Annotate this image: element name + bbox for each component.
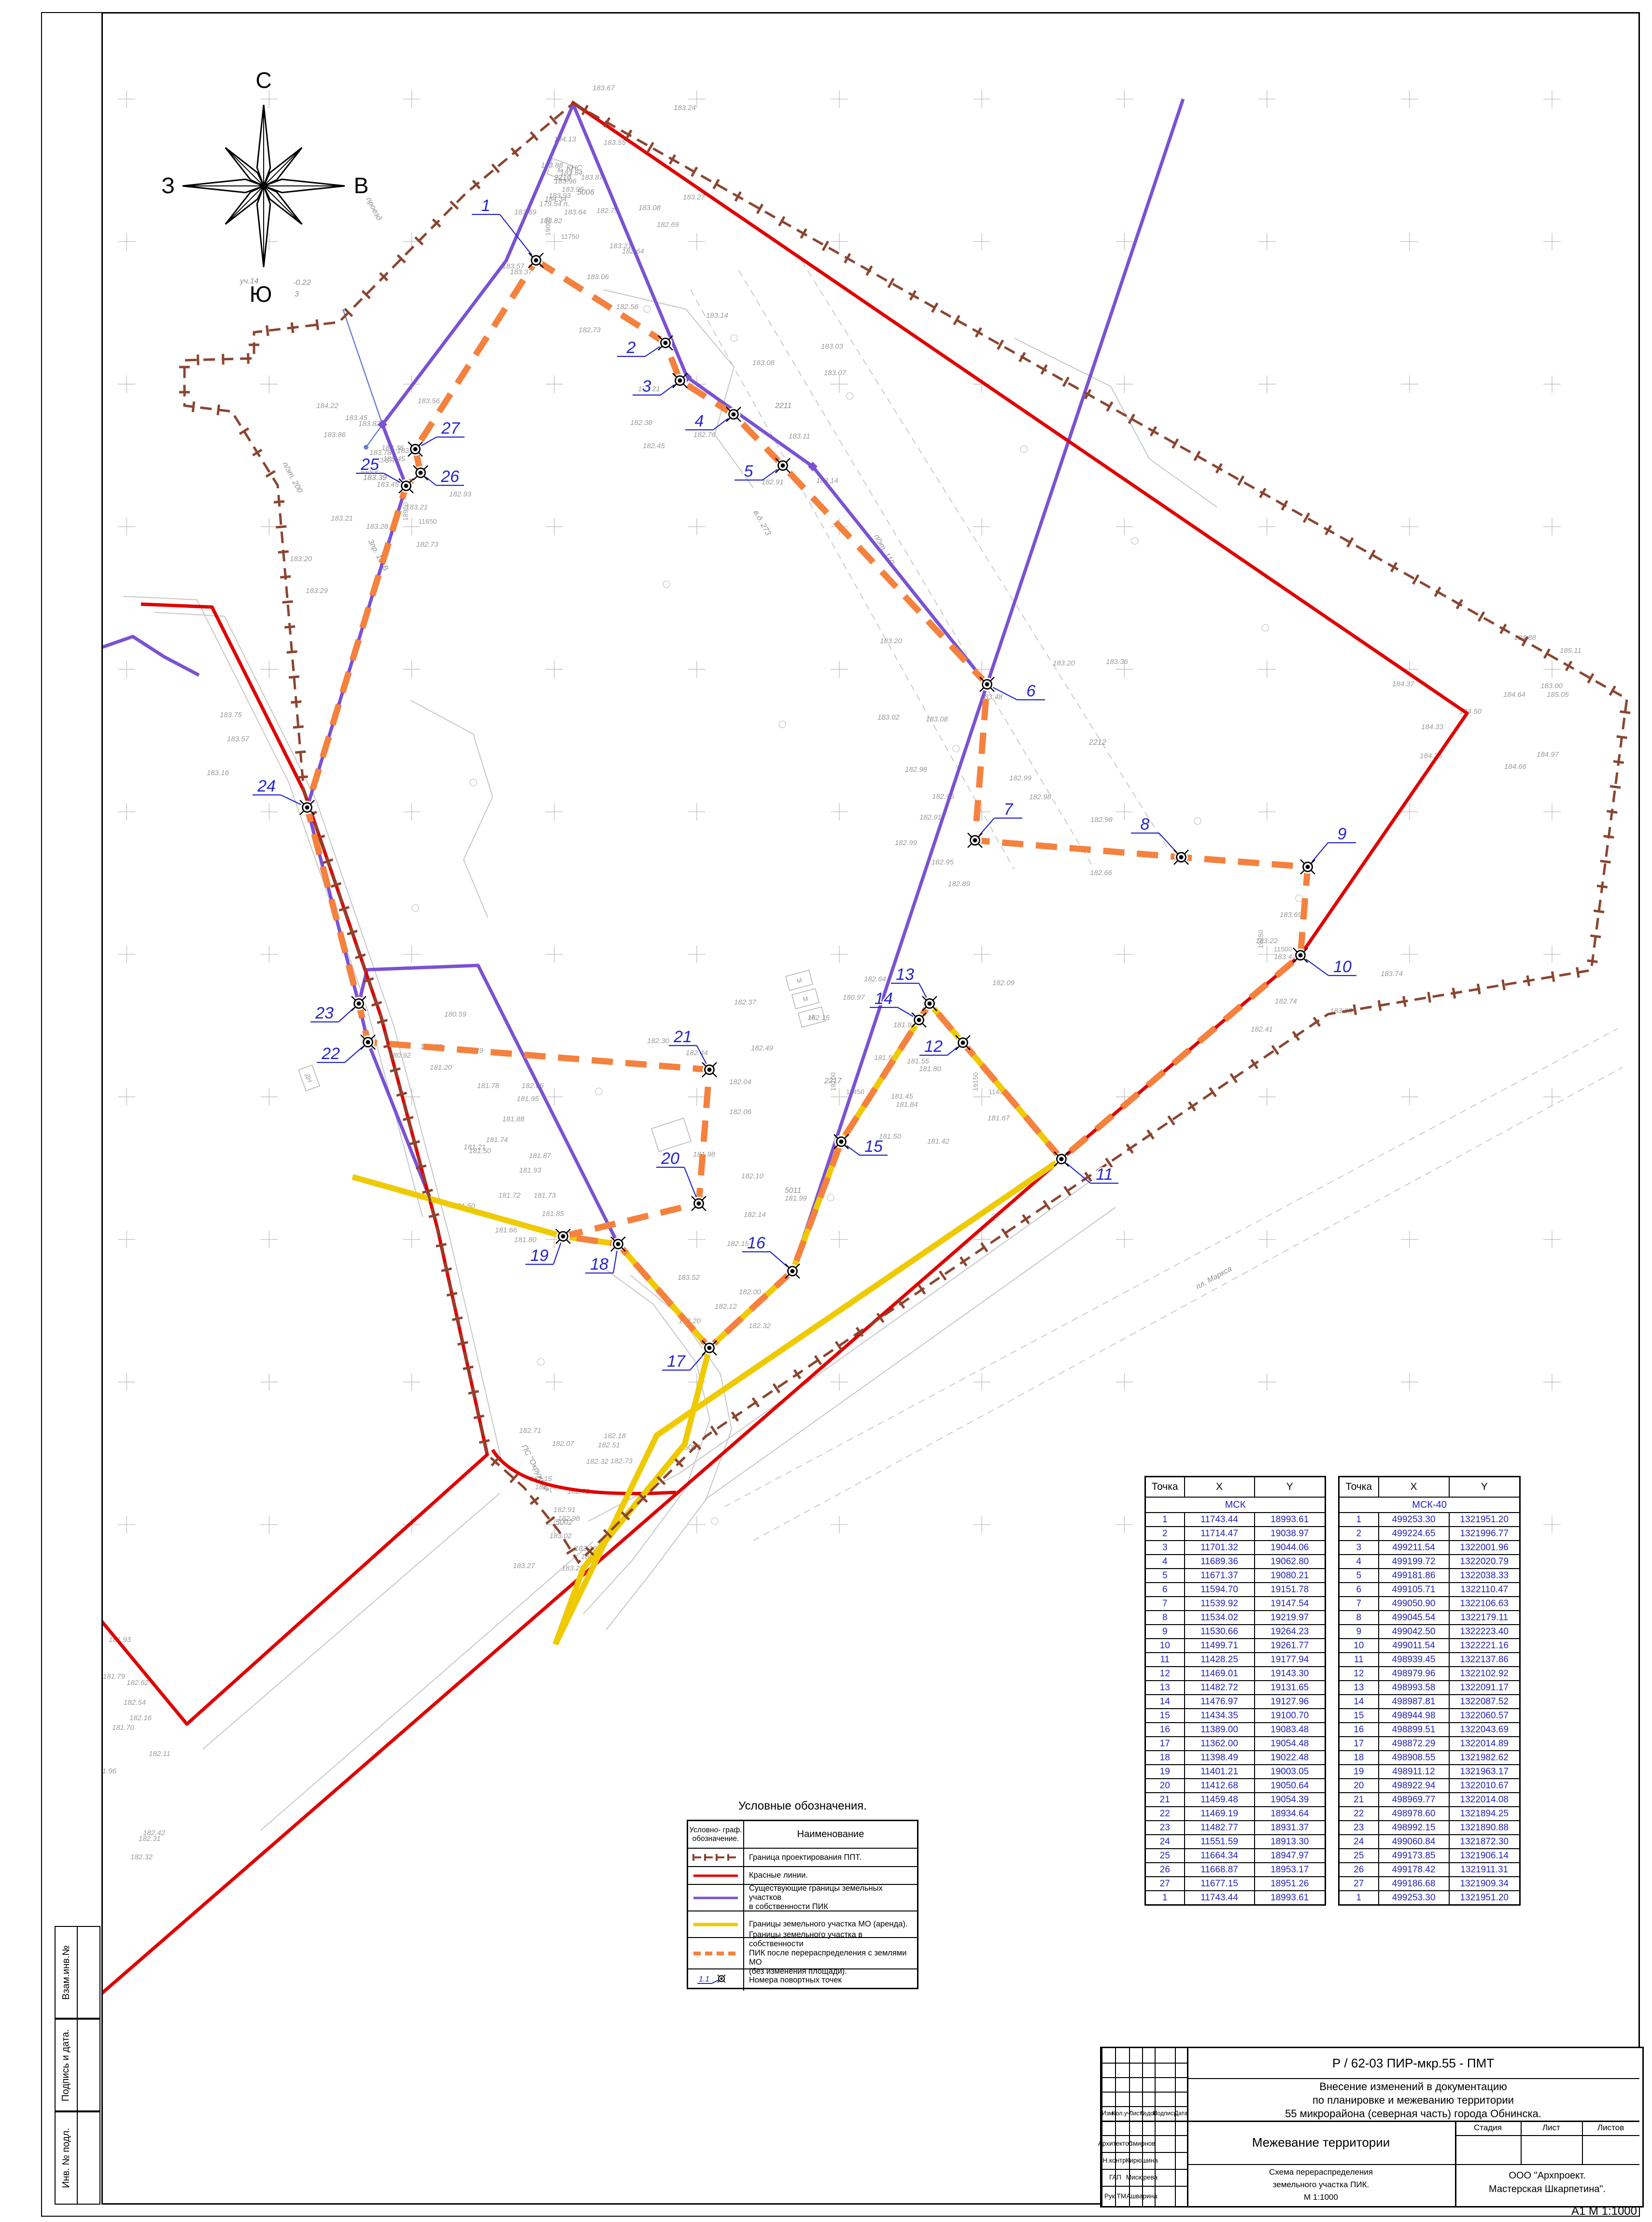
table-cell: 11689.36 (1185, 1555, 1255, 1569)
table-cell: 19147.54 (1255, 1597, 1326, 1611)
stamp-role-label: Архитектор (1101, 2135, 1129, 2152)
table-cell: 1 (1145, 1513, 1185, 1527)
table-cell: 4 (1145, 1555, 1185, 1569)
table-row: 1211469.0119143.30 (1145, 1667, 1326, 1681)
legend-symbol-cell (688, 1938, 744, 1968)
table-cell: 1321906.14 (1449, 1849, 1520, 1863)
table-cell: 13 (1145, 1681, 1185, 1695)
table-cell: 2 (1145, 1527, 1185, 1541)
table-cell: 1322110.47 (1449, 1583, 1520, 1597)
table-row: 2611668.8718953.17 (1145, 1863, 1326, 1877)
stamp-org-line: ООО "Архпроект. (1455, 2169, 1639, 2182)
table-cell: 498922.94 (1379, 1779, 1449, 1793)
table-row: 511671.3719080.21 (1145, 1569, 1326, 1583)
table-row: 27499186.681321909.34 (1339, 1877, 1520, 1891)
legend-symbol-cell (688, 1867, 744, 1884)
table-cell: 7 (1339, 1597, 1379, 1611)
table-cell: 27 (1145, 1877, 1185, 1891)
table-cell: 11469.01 (1185, 1667, 1255, 1681)
legend-symbol-cell (688, 1849, 744, 1866)
table-cell: 19264.23 (1255, 1625, 1326, 1639)
table-cell: 11530.66 (1185, 1625, 1255, 1639)
legend-header-row: Условно- граф.обозначение.Наименование (688, 1821, 917, 1849)
table-cell: 5 (1339, 1569, 1379, 1583)
stamp-header-Подпись: Подпись (1155, 2106, 1175, 2121)
table-cell: 11 (1339, 1653, 1379, 1667)
table-cell: 1321872.30 (1449, 1835, 1520, 1849)
table-cell: 1 (1339, 1513, 1379, 1527)
coordinate-table-msk40: ТочкаXYМСК-401499253.301321951.202499224… (1338, 1476, 1521, 1906)
legend-col2-header: Наименование (744, 1821, 917, 1848)
table-cell: 11434.35 (1185, 1709, 1255, 1723)
table-row: 21498969.771322014.08 (1339, 1793, 1520, 1807)
table-cell: 19 (1145, 1765, 1185, 1779)
table-cell: 11482.72 (1185, 1681, 1255, 1695)
table-cell: 25 (1145, 1849, 1185, 1863)
sheet-format-note: А1 М 1:1000 (1487, 2205, 1637, 2217)
table-row: 6499105.711322110.47 (1339, 1583, 1520, 1597)
table-cell: 6 (1145, 1583, 1185, 1597)
stamp-project-title-line: 55 микрорайона (северная часть) города О… (1187, 2107, 1639, 2121)
table-cell: 8 (1339, 1611, 1379, 1625)
table-cell: 11539.92 (1185, 1597, 1255, 1611)
table-row: 1011499.7119261.77 (1145, 1639, 1326, 1653)
table-row: 211714.4719038.97 (1145, 1527, 1326, 1541)
svg-text:1.1: 1.1 (699, 1975, 709, 1983)
table-cell: 498969.77 (1379, 1793, 1449, 1807)
stamp-line (1455, 2135, 1639, 2136)
sidebar-label: Взам.инв.№ (61, 1945, 72, 2000)
sidebar-box-label-cell: Инв. № подл. (56, 2112, 78, 2204)
table-cell: 1322179.11 (1449, 1611, 1520, 1625)
table-row: 12498979.961322102.92 (1339, 1667, 1520, 1681)
table-cell: 19044.06 (1255, 1541, 1326, 1555)
table-header-cell: Точка (1145, 1477, 1185, 1498)
table-cell: 1322060.57 (1449, 1709, 1520, 1723)
legend-symbol-cell: 1.1 (688, 1969, 744, 1991)
table-cell: 1322102.92 (1449, 1667, 1520, 1681)
stamp-header-Дата: Дата (1175, 2106, 1187, 2121)
legend-symbol-cell (688, 1911, 744, 1937)
table-cell: 11671.37 (1185, 1569, 1255, 1583)
table-row: 15498944.981322060.57 (1339, 1709, 1520, 1723)
table-cell: 499181.86 (1379, 1569, 1449, 1583)
title-block: Изм.Кол.уч.Лист№докПодписьДатаАрхитектор… (1100, 2047, 1644, 2208)
table-cell: 13 (1339, 1681, 1379, 1695)
sidebar-label: Инв. № подл. (61, 2128, 72, 2188)
stamp-stage-header-Стадия: Стадия (1455, 2121, 1521, 2135)
table-header-cell: X (1185, 1477, 1255, 1498)
table-cell: 19050.64 (1255, 1779, 1326, 1793)
sidebar-box-1: Взам.инв.№ (55, 1926, 100, 2019)
table-cell: 9 (1145, 1625, 1185, 1639)
legend-symbol-purple (691, 1890, 741, 1906)
legend-name-cell: Красные линии. (744, 1867, 917, 1884)
sidebar-box-label-cell: Взам.инв.№ (56, 1927, 78, 2018)
table-row: 14498987.811322087.52 (1339, 1695, 1520, 1709)
table-row: 24499060.841321872.30 (1339, 1835, 1520, 1849)
table-row: 25499173.851321906.14 (1339, 1849, 1520, 1863)
legend-row: 1.1Номера повортных точек (688, 1969, 917, 1991)
table-cell: 21 (1339, 1793, 1379, 1807)
table-cell: 19003.05 (1255, 1765, 1326, 1779)
table-cell: 19127.96 (1255, 1695, 1326, 1709)
table-row: 2211469.1918934.64 (1145, 1807, 1326, 1821)
table-cell: 19219.97 (1255, 1611, 1326, 1625)
table-cell: 2 (1339, 1527, 1379, 1541)
table-cell: 11476.97 (1185, 1695, 1255, 1709)
table-cell: 24 (1145, 1835, 1185, 1849)
table-row: 2411551.5918913.30 (1145, 1835, 1326, 1849)
table-row: 111743.4418993.61 (1145, 1513, 1326, 1527)
table-cell: 18947.97 (1255, 1849, 1326, 1863)
stamp-line (1101, 2121, 1187, 2122)
table-cell: 1 (1339, 1891, 1379, 1905)
table-row: 17498872.291322014.89 (1339, 1737, 1520, 1751)
table-cell: 11389.00 (1185, 1723, 1255, 1737)
table-row: 611594.7019151.78 (1145, 1583, 1326, 1597)
stamp-role-name: Мисюрева (1129, 2169, 1155, 2186)
table-cell: 11362.00 (1185, 1737, 1255, 1751)
table-row: 111743.4418993.61 (1145, 1891, 1326, 1905)
table-row: 16498899.511322043.69 (1339, 1723, 1520, 1737)
stamp-line (1187, 2164, 1639, 2165)
table-cell: 19177.94 (1255, 1653, 1326, 1667)
table-cell: 19054.48 (1255, 1737, 1326, 1751)
table-row: 2499224.651321996.77 (1339, 1527, 1520, 1541)
table-cell: 498908.55 (1379, 1751, 1449, 1765)
table-cell: 499224.65 (1379, 1527, 1449, 1541)
table-cell: 1322014.08 (1449, 1793, 1520, 1807)
table-cell: 26 (1339, 1863, 1379, 1877)
table-cell: 14 (1339, 1695, 1379, 1709)
table-row: 10499011.541322221.16 (1339, 1639, 1520, 1653)
stamp-section-title: Межевание территории (1187, 2121, 1455, 2164)
table-row: 811534.0219219.97 (1145, 1611, 1326, 1625)
table-cell: 19080.21 (1255, 1569, 1326, 1583)
stamp-role-name: Смирнов (1129, 2135, 1155, 2152)
legend: Условно- граф.обозначение.НаименованиеГр… (687, 1820, 918, 1989)
table-cell: 11459.48 (1185, 1793, 1255, 1807)
table-row: 26499178.421321911.31 (1339, 1863, 1520, 1877)
table-cell: 498987.81 (1379, 1695, 1449, 1709)
stamp-line (1101, 2077, 1187, 2078)
table-row: 2711677.1518951.26 (1145, 1877, 1326, 1891)
stamp-line (1187, 2078, 1639, 2079)
stamp-scheme-line: М 1:1000 (1187, 2191, 1455, 2204)
table-row: 3499211.541322001.96 (1339, 1541, 1520, 1555)
table-row: 911530.6619264.23 (1145, 1625, 1326, 1639)
coordinate-table-msk: ТочкаXYМСК111743.4418993.61211714.471903… (1144, 1476, 1326, 1906)
table-cell: 14 (1145, 1695, 1185, 1709)
table-header-cell: X (1379, 1477, 1449, 1498)
table-row: 1499253.301321951.20 (1339, 1891, 1520, 1905)
table-cell: 25 (1339, 1849, 1379, 1863)
table-cell: 1321890.88 (1449, 1821, 1520, 1835)
table-cell: 1321996.77 (1449, 1527, 1520, 1541)
stamp-header-Кол.уч.: Кол.уч. (1115, 2106, 1129, 2121)
table-row: 7499050.901322106.63 (1339, 1597, 1520, 1611)
table-cell: 5 (1145, 1569, 1185, 1583)
table-cell: 11701.32 (1185, 1541, 1255, 1555)
table-cell: 499253.30 (1379, 1513, 1449, 1527)
table-header-cell: Y (1449, 1477, 1520, 1498)
table-cell: 27 (1339, 1877, 1379, 1891)
legend-symbol-cell (688, 1885, 744, 1911)
table-cell: 19054.39 (1255, 1793, 1326, 1807)
table-row: 711539.9219147.54 (1145, 1597, 1326, 1611)
table-cell: 20 (1145, 1779, 1185, 1793)
table-cell: 1321982.62 (1449, 1751, 1520, 1765)
table-cell: 10 (1145, 1639, 1185, 1653)
table-cell: 11743.44 (1185, 1513, 1255, 1527)
table-row: 23498992.151321890.88 (1339, 1821, 1520, 1835)
table-cell: 1322043.69 (1449, 1723, 1520, 1737)
table-cell: 3 (1339, 1541, 1379, 1555)
table-cell: 1321911.31 (1449, 1863, 1520, 1877)
table-cell: 1322221.16 (1449, 1639, 1520, 1653)
table-cell: 4 (1339, 1555, 1379, 1569)
table-cell: 1322001.96 (1449, 1541, 1520, 1555)
legend-row: Красные линии. (688, 1867, 917, 1885)
sidebar-box-3: Инв. № подл. (55, 2111, 100, 2205)
table-row: 2511664.3418947.97 (1145, 1849, 1326, 1863)
table-cell: 499253.30 (1379, 1891, 1449, 1905)
table-cell: 18934.64 (1255, 1807, 1326, 1821)
table-cell: 498872.29 (1379, 1737, 1449, 1751)
table-cell: 499211.54 (1379, 1541, 1449, 1555)
table-row: 1411476.9719127.96 (1145, 1695, 1326, 1709)
table-cell: 18931.37 (1255, 1821, 1326, 1835)
table-cell: 19022.48 (1255, 1751, 1326, 1765)
table-cell: 18953.17 (1255, 1863, 1326, 1877)
legend-symbol-orange (691, 1945, 741, 1962)
table-cell: 22 (1339, 1807, 1379, 1821)
table-cell: 10 (1339, 1639, 1379, 1653)
stamp-line (1101, 2092, 1187, 2093)
table-cell: 12 (1145, 1667, 1185, 1681)
drawing-sheet: ММММДН1175019000115001925011450191001165… (0, 0, 1652, 2222)
table-cell: 499050.90 (1379, 1597, 1449, 1611)
table-row: 1811398.4919022.48 (1145, 1751, 1326, 1765)
table-cell: 24 (1339, 1835, 1379, 1849)
table-cell: 18993.61 (1255, 1513, 1326, 1527)
table-cell: 3 (1145, 1541, 1185, 1555)
table-cell: 19100.70 (1255, 1709, 1326, 1723)
table-cell: 19151.78 (1255, 1583, 1326, 1597)
table-cell: 15 (1145, 1709, 1185, 1723)
table-cell: 498993.58 (1379, 1681, 1449, 1695)
legend-name-cell: Граница проектирования ППТ. (744, 1849, 917, 1866)
table-cell: 19 (1339, 1765, 1379, 1779)
table-cell: 499042.50 (1379, 1625, 1449, 1639)
table-row: 1111428.2519177.94 (1145, 1653, 1326, 1667)
stamp-project-title-line: по планировке и межеванию территории (1187, 2094, 1639, 2107)
stamp-scheme-line: земельного участка ПИК. (1187, 2179, 1455, 2191)
table-cell: 23 (1339, 1821, 1379, 1835)
stamp-doc-number: Р / 62-03 ПИР-мкр.55 - ПМТ (1187, 2048, 1639, 2078)
table-cell: 11534.02 (1185, 1611, 1255, 1625)
table-cell: 498899.51 (1379, 1723, 1449, 1737)
legend-row: Существующие границы земельных участков … (688, 1885, 917, 1911)
stamp-role-name: Ашварина (1129, 2186, 1155, 2206)
table-row: 13498993.581322091.17 (1339, 1681, 1520, 1695)
table-row: 9499042.501322223.40 (1339, 1625, 1520, 1639)
table-row: 4499199.721322020.79 (1339, 1555, 1520, 1569)
stamp-org-line: Мастерская Шкарпетина". (1455, 2182, 1639, 2196)
stamp-line (1101, 2063, 1187, 2064)
stamp-role-name: Кирюшина (1129, 2152, 1155, 2169)
sidebar-box-2: Подпись и дата. (55, 2019, 100, 2111)
sidebar-label: Подпись и дата. (61, 2029, 72, 2101)
table-cell: 11664.34 (1185, 1849, 1255, 1863)
table-cell: 19038.97 (1255, 1527, 1326, 1541)
table-cell: 11668.87 (1185, 1863, 1255, 1877)
table-cell: 11743.44 (1185, 1891, 1255, 1905)
table-row: 2011412.6819050.64 (1145, 1779, 1326, 1793)
table-cell: 499045.54 (1379, 1611, 1449, 1625)
stamp-role-label: Н.контр. (1101, 2152, 1129, 2169)
table-cell: 18 (1339, 1751, 1379, 1765)
table-cell: 11482.77 (1185, 1821, 1255, 1835)
table-cell: 499186.68 (1379, 1877, 1449, 1891)
table-cell: 11398.49 (1185, 1751, 1255, 1765)
table-cell: 20 (1339, 1779, 1379, 1793)
table-row: 22498978.601321894.25 (1339, 1807, 1520, 1821)
table-cell: 23 (1145, 1821, 1185, 1835)
table-cell: 11401.21 (1185, 1765, 1255, 1779)
table-cell: 16 (1145, 1723, 1185, 1737)
table-cell: 499105.71 (1379, 1583, 1449, 1597)
table-cell: 19062.80 (1255, 1555, 1326, 1569)
table-cell: 1322014.89 (1449, 1737, 1520, 1751)
stamp-stage-header-Листов: Листов (1582, 2121, 1639, 2135)
stamp-line (1175, 2048, 1176, 2206)
table-cell: 17 (1339, 1737, 1379, 1751)
table-cell: 12 (1339, 1667, 1379, 1681)
table-cell: 8 (1145, 1611, 1185, 1625)
stamp-role-label: ГАП (1101, 2169, 1129, 2186)
table-cell: 498992.15 (1379, 1821, 1449, 1835)
table-cell: 19261.77 (1255, 1639, 1326, 1653)
legend-symbol-ppt (691, 1849, 741, 1866)
table-cell: 11677.15 (1185, 1877, 1255, 1891)
table-row: 1511434.3519100.70 (1145, 1709, 1326, 1723)
table-cell: 1321909.34 (1449, 1877, 1520, 1891)
table-cell: 19131.65 (1255, 1681, 1326, 1695)
table-cell: 17 (1145, 1737, 1185, 1751)
table-cell: 498978.60 (1379, 1807, 1449, 1821)
legend-col1-header: Условно- граф.обозначение. (688, 1821, 744, 1848)
table-cell: 1321951.20 (1449, 1513, 1520, 1527)
table-cell: 1322223.40 (1449, 1625, 1520, 1639)
table-cell: 498979.96 (1379, 1667, 1449, 1681)
table-cell: 498911.12 (1379, 1765, 1449, 1779)
table-cell: 1322010.67 (1449, 1779, 1520, 1793)
table-row: 411689.3619062.80 (1145, 1555, 1326, 1569)
table-cell: 11499.71 (1185, 1639, 1255, 1653)
stamp-line (1155, 2048, 1156, 2206)
table-cell: 15 (1339, 1709, 1379, 1723)
table-cell: 21 (1145, 1793, 1185, 1807)
table-cell: 16 (1339, 1723, 1379, 1737)
table-cell: 1321951.20 (1449, 1891, 1520, 1905)
table-cell: 498939.45 (1379, 1653, 1449, 1667)
table-row: 19498911.121321963.17 (1339, 1765, 1520, 1779)
stamp-stage-header-Лист: Лист (1521, 2121, 1582, 2135)
table-cell: 11 (1145, 1653, 1185, 1667)
legend-name-cell: Номера повортных точек (744, 1969, 917, 1991)
table-row: 2311482.7718931.37 (1145, 1821, 1326, 1835)
table-row: 1711362.0019054.48 (1145, 1737, 1326, 1751)
table-cell: 18 (1145, 1751, 1185, 1765)
table-cell: 1 (1145, 1891, 1185, 1905)
legend-symbol-red (691, 1868, 741, 1884)
table-cell: 18993.61 (1255, 1891, 1326, 1905)
table-system-band: МСК (1145, 1497, 1326, 1513)
table-header-cell: Y (1255, 1477, 1326, 1498)
legend-row: Граница проектирования ППТ. (688, 1849, 917, 1867)
table-row: 311701.3219044.06 (1145, 1541, 1326, 1555)
table-cell: 499173.85 (1379, 1849, 1449, 1863)
table-cell: 1321894.25 (1449, 1807, 1520, 1821)
table-cell: 9 (1339, 1625, 1379, 1639)
table-system-band: МСК-40 (1339, 1497, 1520, 1513)
table-row: 1911401.2119003.05 (1145, 1765, 1326, 1779)
table-header-cell: Точка (1339, 1477, 1379, 1498)
legend-symbol-point: 1.1 (691, 1972, 741, 1988)
table-cell: 499011.54 (1379, 1639, 1449, 1653)
legend-row: Границы земельного участка в собственнос… (688, 1938, 917, 1969)
stamp-project-title-line: Внесение изменений в документацию (1187, 2080, 1639, 2094)
table-cell: 11412.68 (1185, 1779, 1255, 1793)
table-row: 1311482.7219131.65 (1145, 1681, 1326, 1695)
table-row: 1499253.301321951.20 (1339, 1513, 1520, 1527)
legend-symbol-yellow (691, 1916, 741, 1933)
legend-name-cell: Существующие границы земельных участков … (744, 1885, 917, 1911)
table-row: 2111459.4819054.39 (1145, 1793, 1326, 1807)
table-cell: 18951.26 (1255, 1877, 1326, 1891)
table-cell: 499199.72 (1379, 1555, 1449, 1569)
table-cell: 1322137.86 (1449, 1653, 1520, 1667)
table-cell: 1322091.17 (1449, 1681, 1520, 1695)
table-cell: 11594.70 (1185, 1583, 1255, 1597)
table-cell: 11469.19 (1185, 1807, 1255, 1821)
table-row: 5499181.861322038.33 (1339, 1569, 1520, 1583)
table-cell: 18913.30 (1255, 1835, 1326, 1849)
table-cell: 11428.25 (1185, 1653, 1255, 1667)
sidebar-box-label-cell: Подпись и дата. (56, 2020, 78, 2110)
table-row: 20498922.941322010.67 (1339, 1779, 1520, 1793)
legend-name-cell: Границы земельного участка в собственнос… (744, 1938, 917, 1968)
table-cell: 26 (1145, 1863, 1185, 1877)
stamp-role-label: Рук ТМ (1101, 2186, 1129, 2206)
table-row: 8499045.541322179.11 (1339, 1611, 1520, 1625)
table-cell: 1322087.52 (1449, 1695, 1520, 1709)
table-cell: 1322020.79 (1449, 1555, 1520, 1569)
table-row: 18498908.551321982.62 (1339, 1751, 1520, 1765)
table-cell: 11551.59 (1185, 1835, 1255, 1849)
table-cell: 1322038.33 (1449, 1569, 1520, 1583)
table-cell: 499178.42 (1379, 1863, 1449, 1877)
table-cell: 19083.48 (1255, 1723, 1326, 1737)
stamp-scheme-line: Схема перераспределения (1187, 2166, 1455, 2179)
table-row: 11498939.451322137.86 (1339, 1653, 1520, 1667)
table-cell: 1322106.63 (1449, 1597, 1520, 1611)
table-cell: 499060.84 (1379, 1835, 1449, 1849)
table-cell: 6 (1339, 1583, 1379, 1597)
table-cell: 7 (1145, 1597, 1185, 1611)
